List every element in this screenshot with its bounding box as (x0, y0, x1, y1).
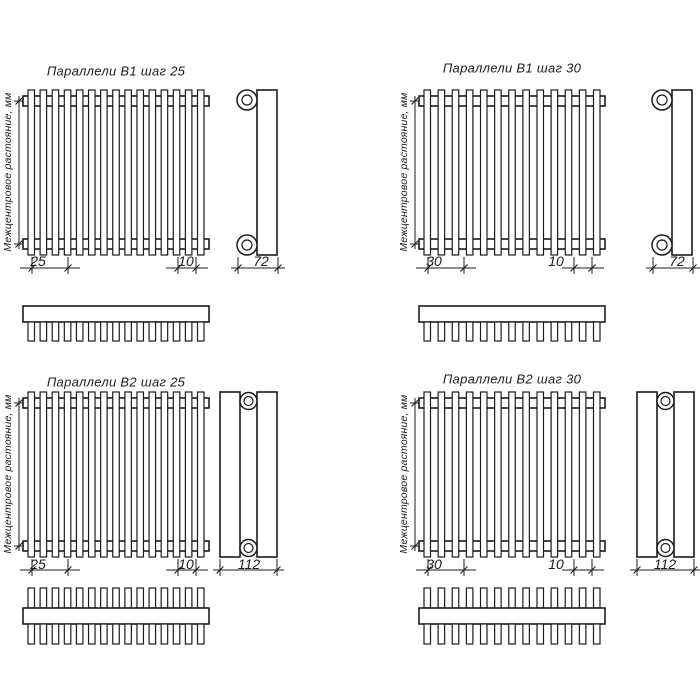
drawing-linework (0, 0, 700, 700)
quadrant-title-b1-30: Параллели В1 шаг 30 (443, 62, 581, 75)
end-dimension-label: 10 (178, 557, 194, 571)
depth-dimension-label: 72 (669, 254, 685, 268)
end-dimension-label: 10 (548, 557, 564, 571)
step-dimension-label: 25 (30, 254, 46, 268)
quadrant-title-b2-25: Параллели В2 шаг 25 (47, 376, 185, 389)
quadrant-title-b1-25: Параллели В1 шаг 25 (47, 65, 185, 78)
depth-dimension-label: 112 (238, 557, 260, 571)
technical-drawing-canvas: Параллели В1 шаг 25 Межцентровое растоян… (0, 0, 700, 700)
end-dimension-label: 10 (178, 254, 194, 268)
step-dimension-label: 30 (426, 557, 442, 571)
vertical-axis-label: Межцентровое растояние, мм (3, 394, 14, 553)
end-dimension-label: 10 (548, 254, 564, 268)
step-dimension-label: 30 (426, 254, 442, 268)
step-dimension-label: 25 (30, 557, 46, 571)
vertical-axis-label: Межцентровое растояние, мм (399, 394, 410, 553)
vertical-axis-label: Межцентровое растояние, мм (3, 92, 14, 251)
depth-dimension-label: 72 (253, 254, 269, 268)
depth-dimension-label: 112 (654, 557, 676, 571)
quadrant-title-b2-30: Параллели В2 шаг 30 (443, 373, 581, 386)
vertical-axis-label: Межцентровое растояние, мм (399, 92, 410, 251)
